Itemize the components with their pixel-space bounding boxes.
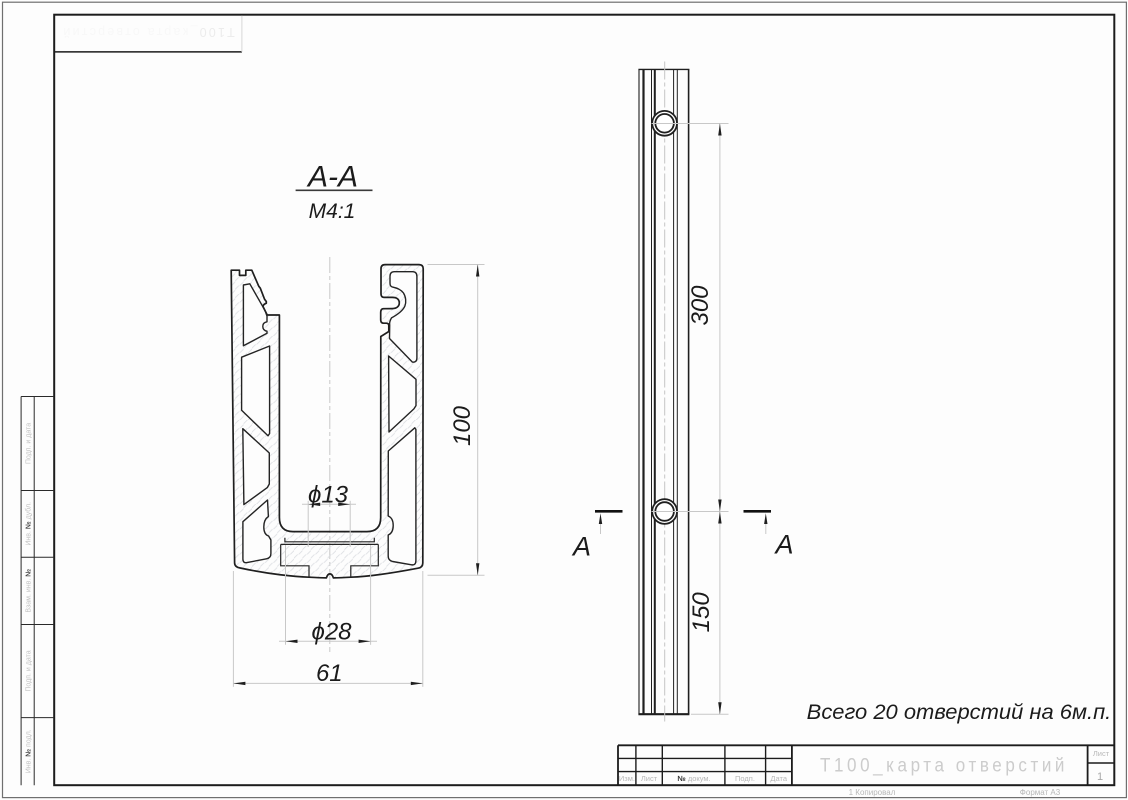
svg-text:ϕ13: ϕ13 [308, 481, 349, 508]
svg-text:Дата: Дата [770, 774, 787, 783]
svg-text:Подп. и дата: Подп. и дата [26, 650, 33, 691]
svg-text:Лист: Лист [1093, 749, 1110, 758]
svg-text:А: А [773, 530, 793, 560]
svg-text:Т100_карта отверстий: Т100_карта отверстий [820, 756, 1068, 777]
svg-text:А-А: А-А [306, 161, 358, 194]
svg-text:А: А [571, 532, 591, 562]
svg-text:Инв. № подл.: Инв. № подл. [25, 729, 33, 773]
svg-text:300: 300 [687, 285, 714, 326]
svg-text:М4:1: М4:1 [309, 200, 356, 223]
svg-text:Формат А3: Формат А3 [1020, 788, 1061, 797]
svg-text:Взам. инв. №: Взам. инв. № [25, 569, 33, 613]
svg-text:1: 1 [1097, 771, 1103, 783]
svg-text:ϕ28: ϕ28 [311, 619, 352, 646]
svg-text:Подп.: Подп. [735, 774, 755, 783]
svg-text:Изм.: Изм. [619, 774, 635, 783]
svg-text:1 Копировал: 1 Копировал [849, 788, 896, 797]
svg-text:100: 100 [449, 405, 476, 446]
svg-text:150: 150 [688, 592, 715, 633]
svg-text:Лист: Лист [641, 774, 658, 783]
svg-text:61: 61 [316, 660, 343, 687]
svg-text:Всего 20 отверстий на 6м.п.: Всего 20 отверстий на 6м.п. [807, 701, 1112, 724]
svg-text:Инв. № дубл.: Инв. № дубл. [25, 502, 33, 546]
svg-text:№ докум.: № докум. [677, 774, 710, 783]
svg-text:Т100_карта отверстий: Т100_карта отверстий [61, 25, 235, 39]
svg-text:Подп. и дата: Подп. и дата [26, 423, 33, 464]
